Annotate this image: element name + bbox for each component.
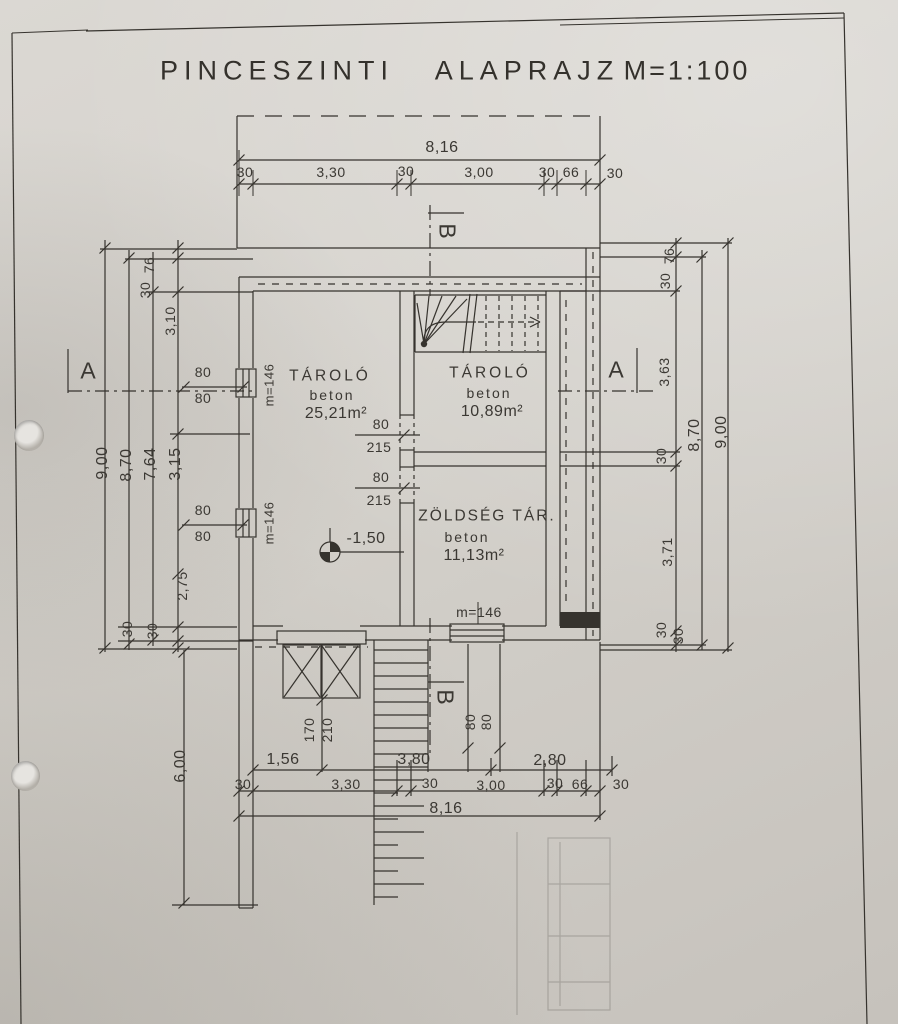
dim-bottom-chain-2: 30 bbox=[422, 776, 439, 790]
dim-top-chain-0: 30 bbox=[237, 165, 254, 179]
dim-left-275: 2,75 bbox=[175, 571, 189, 600]
dim-top-chain-6: 30 bbox=[607, 166, 624, 180]
dim-left-30c: 30 bbox=[145, 623, 159, 640]
room2-area: 10,89m² bbox=[461, 404, 523, 420]
dim-right-870: 8,70 bbox=[687, 418, 703, 451]
window2-height: 80 bbox=[195, 529, 212, 543]
scanned-floor-plan-page: PINCESZINTI ALAPRAJZ M=1:100 8,16 30 3,3… bbox=[0, 0, 898, 1024]
dim-left-310: 3,10 bbox=[163, 306, 177, 335]
level-marker-value: -1,50 bbox=[347, 531, 386, 547]
page-title-type: ALAPRAJZ bbox=[435, 58, 620, 85]
dim-bottom-total: 8,16 bbox=[429, 801, 462, 817]
section-marker-a-right: A bbox=[608, 359, 623, 382]
bottom-dimension-lines bbox=[234, 642, 618, 822]
dim-right-900: 9,00 bbox=[714, 415, 730, 448]
section-marker-a-left: A bbox=[80, 360, 95, 383]
exterior-stair bbox=[374, 640, 428, 905]
dim-top-chain-1: 3,30 bbox=[316, 165, 345, 179]
dim-top-chain-3: 3,00 bbox=[464, 165, 493, 179]
dim-bottom-chain-6: 30 bbox=[613, 777, 630, 791]
dim-left-76: 76 bbox=[142, 257, 156, 274]
wall-hatching bbox=[255, 252, 593, 647]
room2-material: beton bbox=[466, 386, 511, 400]
dim-right-30d: 30 bbox=[671, 628, 685, 645]
page-title: PINCESZINTI bbox=[160, 58, 394, 85]
dim-left-600: 6,00 bbox=[173, 749, 189, 782]
room1-material: beton bbox=[309, 388, 354, 402]
room3-name: ZÖLDSÉG TÁR. bbox=[418, 508, 555, 524]
garage-door-height: 210 bbox=[320, 718, 334, 743]
dim-right-363: 3,63 bbox=[657, 357, 671, 386]
window1-width: 80 bbox=[195, 365, 212, 379]
room3-area: 11,13m² bbox=[443, 548, 504, 564]
dim-right-371: 3,71 bbox=[660, 537, 674, 566]
door2-height: 215 bbox=[367, 493, 392, 507]
section-line-b bbox=[428, 205, 464, 756]
window3-width: 80 bbox=[463, 714, 477, 731]
dim-left-900: 9,00 bbox=[95, 446, 111, 479]
garage-door-width: 170 bbox=[302, 718, 316, 743]
section-marker-b-top: B bbox=[436, 223, 459, 238]
window1-sill: m=146 bbox=[263, 364, 276, 407]
punch-hole-top bbox=[14, 420, 44, 451]
dim-bottom-span-2: 2,80 bbox=[533, 753, 566, 769]
window2-width: 80 bbox=[195, 503, 212, 517]
walls bbox=[239, 248, 600, 908]
dim-left-764: 7,64 bbox=[143, 447, 159, 480]
dim-bottom-chain-4: 30 bbox=[547, 776, 564, 790]
dim-left-870: 8,70 bbox=[119, 448, 135, 481]
room3-material: beton bbox=[444, 530, 489, 544]
section-marker-b-bottom: B bbox=[434, 689, 457, 704]
door1-height: 215 bbox=[367, 440, 392, 454]
dim-bottom-chain-5: 66 bbox=[572, 777, 589, 791]
bleed-through bbox=[517, 832, 610, 1015]
dim-bottom-span-1: 3,80 bbox=[397, 752, 430, 768]
dim-right-76: 76 bbox=[662, 248, 676, 265]
dim-bottom-chain-0: 30 bbox=[235, 777, 252, 791]
door1-width: 80 bbox=[373, 417, 390, 431]
interior-stair bbox=[415, 294, 546, 353]
room1-name: TÁROLÓ bbox=[289, 368, 371, 384]
dim-top-total: 8,16 bbox=[425, 140, 458, 156]
dim-left-30a: 30 bbox=[138, 282, 152, 299]
window1-height: 80 bbox=[195, 391, 212, 405]
door2-width: 80 bbox=[373, 470, 390, 484]
window3-height: 80 bbox=[479, 714, 493, 731]
room2-name: TÁROLÓ bbox=[449, 365, 531, 381]
dim-top-chain-5: 66 bbox=[563, 165, 580, 179]
window2-sill: m=146 bbox=[263, 502, 276, 545]
window3-sill: m=146 bbox=[456, 605, 502, 619]
dim-top-chain-2: 30 bbox=[398, 164, 415, 178]
punch-hole-bottom bbox=[11, 761, 40, 791]
dim-right-30a: 30 bbox=[658, 273, 672, 290]
room1-area: 25,21m² bbox=[305, 406, 367, 422]
dim-bottom-chain-3: 3,00 bbox=[476, 778, 505, 792]
dim-left-30b: 30 bbox=[120, 621, 134, 638]
dim-bottom-span-0: 1,56 bbox=[266, 752, 299, 768]
dim-top-chain-4: 30 bbox=[539, 165, 556, 179]
dim-bottom-chain-1: 3,30 bbox=[331, 777, 360, 791]
dim-left-315: 3,15 bbox=[168, 447, 184, 480]
page-title-scale: M=1:100 bbox=[624, 58, 751, 85]
dim-right-30c: 30 bbox=[654, 622, 668, 639]
dim-right-30b: 30 bbox=[654, 448, 668, 465]
